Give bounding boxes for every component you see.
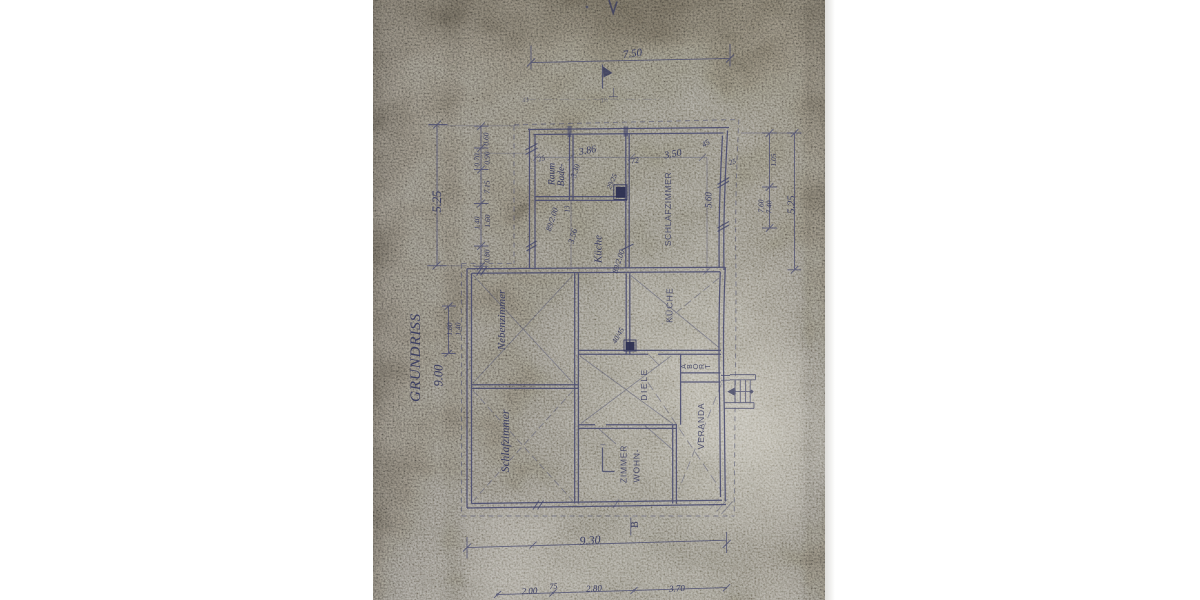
svg-text:3.70: 3.70 <box>668 583 686 594</box>
svg-text:Raum: Raum <box>548 163 558 186</box>
svg-text:GRUNDRISS: GRUNDRISS <box>407 313 424 402</box>
svg-text:72: 72 <box>630 155 639 165</box>
svg-text:3.30: 3.30 <box>569 163 582 180</box>
svg-text:T: T <box>705 364 712 369</box>
svg-text:5.25: 5.25 <box>430 191 444 213</box>
svg-text:9.30: 9.30 <box>579 533 601 548</box>
svg-text:43: 43 <box>521 96 530 105</box>
svg-text:7.15: 7.15 <box>483 180 492 193</box>
svg-text:0.80: 0.80 <box>483 249 492 262</box>
svg-text:WOHN-: WOHN- <box>632 449 642 483</box>
svg-text:89/2.00: 89/2.00 <box>610 249 626 275</box>
svg-text:0.90: 0.90 <box>483 151 492 164</box>
svg-text:3.86: 3.86 <box>577 144 597 158</box>
svg-text:B: B <box>630 521 641 528</box>
svg-text:ZIMMER: ZIMMER <box>618 445 628 483</box>
svg-text:13: 13 <box>564 205 572 213</box>
svg-text:89/2.00: 89/2.00 <box>544 207 560 233</box>
svg-text:0.60: 0.60 <box>482 132 491 145</box>
svg-text:1½: 1½ <box>600 96 609 104</box>
svg-text:SCHLAFZIMMER: SCHLAFZIMMER <box>663 172 673 246</box>
svg-text:75: 75 <box>549 582 557 591</box>
svg-text:3.56: 3.56 <box>565 227 579 246</box>
svg-text:Schlafzimmer: Schlafzimmer <box>500 409 512 472</box>
svg-text:1.40: 1.40 <box>454 322 463 335</box>
svg-text:3.50: 3.50 <box>662 148 682 162</box>
svg-text:VERANDA: VERANDA <box>696 403 706 450</box>
svg-text:Küche: Küche <box>593 235 605 264</box>
svg-text:0.70: 0.70 <box>473 153 482 166</box>
svg-text:45: 45 <box>700 137 711 149</box>
svg-text:2.80: 2.80 <box>586 583 603 594</box>
svg-text:1.05: 1.05 <box>769 153 778 166</box>
svg-text:5.60: 5.60 <box>704 192 714 208</box>
svg-text:9.00: 9.00 <box>432 364 446 387</box>
svg-text:25: 25 <box>728 157 737 167</box>
svg-text:7.50: 7.50 <box>622 47 643 62</box>
svg-text:5.25: 5.25 <box>787 195 798 213</box>
svg-text:DIELE: DIELE <box>639 368 649 401</box>
svg-text:Bade-: Bade- <box>557 164 567 187</box>
svg-text:7.40: 7.40 <box>765 200 774 213</box>
svg-text:1.40: 1.40 <box>473 216 482 229</box>
svg-text:Nebenzimmer: Nebenzimmer <box>496 289 508 351</box>
svg-text:25: 25 <box>537 154 546 164</box>
svg-text:2.00: 2.00 <box>521 585 538 596</box>
svg-text:KÜCHE: KÜCHE <box>665 287 675 323</box>
svg-text:1.60: 1.60 <box>483 214 492 227</box>
